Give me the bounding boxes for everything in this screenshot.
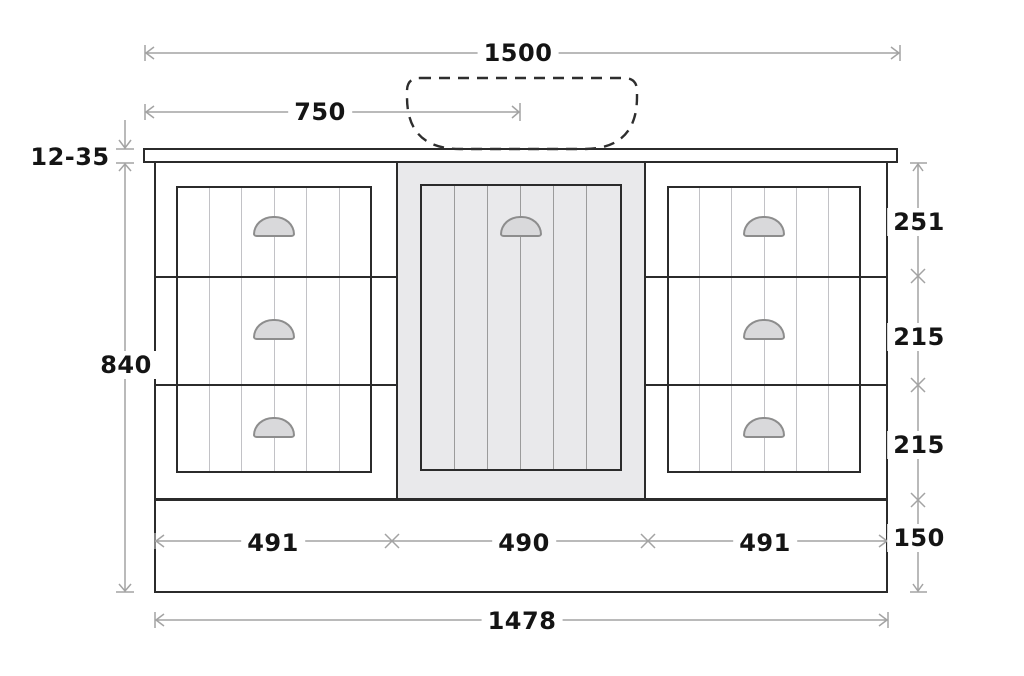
- dim-label-sink-center: 750: [288, 98, 352, 126]
- dim-label-carcass-width: 1478: [482, 607, 563, 635]
- dim-label-drawer-top: 251: [887, 208, 951, 236]
- sink-outline-icon: [407, 78, 637, 149]
- dim-label-drawer-middle: 215: [887, 323, 951, 351]
- dim-label-drawer-bottom: 215: [887, 431, 951, 459]
- dim-label-left-width: 491: [241, 529, 305, 557]
- dim-label-plinth-height: 150: [887, 524, 951, 552]
- vanity-dimension-diagram: 1500 750 12-35 840 251 215 215 150 491 4…: [0, 0, 1024, 676]
- dimension-annotations: [0, 0, 1024, 676]
- dim-label-total-width: 1500: [478, 39, 559, 67]
- dim-label-right-width: 491: [733, 529, 797, 557]
- dim-label-cabinet-height: 840: [94, 351, 158, 379]
- dim-label-center-width: 490: [492, 529, 556, 557]
- dim-label-top-thickness: 12-35: [24, 143, 115, 171]
